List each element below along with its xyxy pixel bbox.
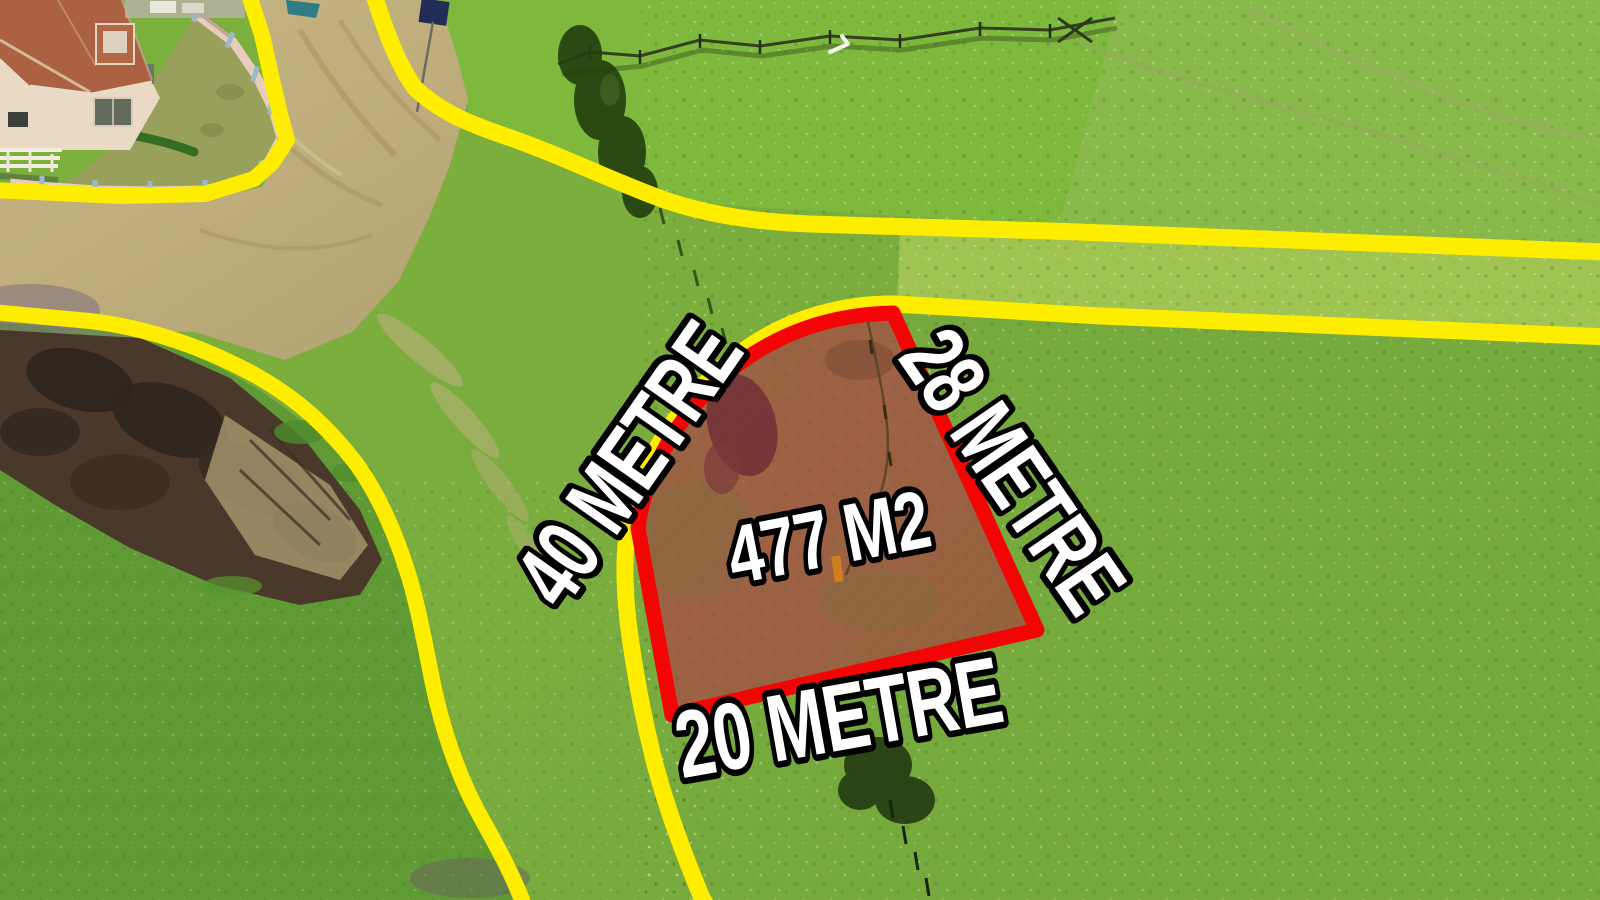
aerial-photo: 40 METRE 28 METRE 477 M2 20 METRE xyxy=(0,0,1600,900)
porch-shadow xyxy=(0,176,58,180)
mound xyxy=(70,454,170,510)
material-sacks xyxy=(182,3,204,13)
bush-highlight xyxy=(600,74,620,106)
tower-cap xyxy=(103,31,127,53)
grass-patch xyxy=(202,576,262,596)
yard-tuft xyxy=(200,123,224,137)
house-window xyxy=(8,112,28,127)
mound xyxy=(0,408,80,456)
yard-tuft xyxy=(216,84,244,100)
blue-equipment xyxy=(418,0,449,26)
material-sacks xyxy=(150,1,176,13)
red-bush xyxy=(704,442,740,494)
